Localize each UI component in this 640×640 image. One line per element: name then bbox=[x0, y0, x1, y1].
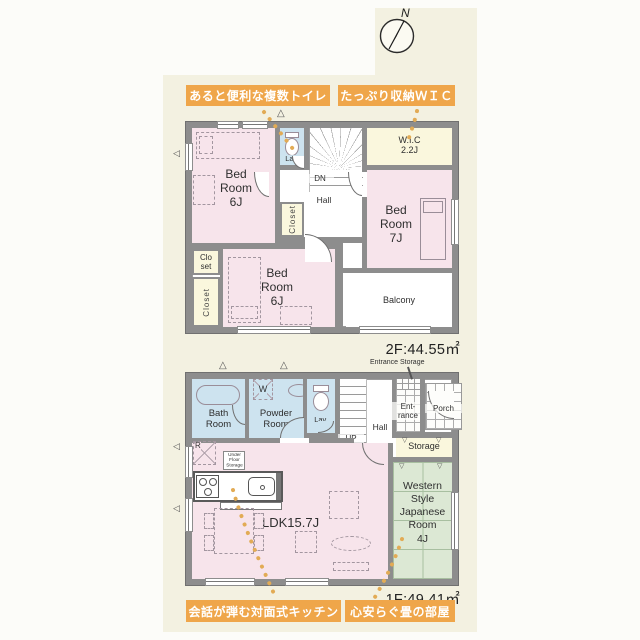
room-closet-small-2f: Clo set bbox=[192, 249, 220, 275]
washing-machine-icon: W bbox=[253, 379, 273, 400]
window-mark bbox=[286, 579, 328, 585]
triangle-down-icon: ▽ bbox=[437, 463, 442, 470]
triangle-left-icon: ◁ bbox=[173, 504, 180, 513]
wall bbox=[220, 249, 223, 327]
window-mark bbox=[238, 327, 310, 333]
closet-left-label: Closet bbox=[202, 288, 211, 317]
chair-icon bbox=[254, 513, 264, 529]
bed-pillow-icon bbox=[199, 136, 213, 154]
triangle-left-icon: ◁ bbox=[173, 442, 180, 451]
bathtub-icon bbox=[196, 385, 240, 405]
burner-icon bbox=[199, 478, 207, 486]
compass-north-label: N bbox=[401, 6, 410, 20]
callout-tatami: 心安らぐ畳の部屋 bbox=[345, 600, 455, 622]
burner-icon bbox=[204, 488, 212, 496]
dining-table-icon bbox=[214, 508, 254, 554]
wall bbox=[335, 243, 343, 327]
closet-small-label: Clo set bbox=[200, 253, 212, 271]
triangle-down-icon: ▽ bbox=[399, 463, 404, 470]
toilet-bowl-icon bbox=[313, 392, 329, 411]
low-table-icon bbox=[295, 531, 317, 553]
window-mark bbox=[186, 144, 192, 170]
closet-mid-label: Closet bbox=[288, 205, 297, 234]
under-floor-storage: Under Floor Storage bbox=[223, 451, 245, 470]
porch-label: Porch bbox=[425, 404, 462, 413]
chair-icon bbox=[204, 535, 214, 551]
triangle-down-icon: ▽ bbox=[402, 437, 407, 444]
wic-label: W.I.C 2.2J bbox=[367, 135, 452, 156]
tv-board-icon bbox=[333, 562, 369, 571]
window-mark bbox=[452, 200, 458, 244]
room-closet-left-2f: Closet bbox=[192, 277, 220, 327]
rug-icon bbox=[331, 536, 371, 551]
kitchen-sink-icon bbox=[248, 477, 275, 496]
stairs-down-label: DN bbox=[306, 174, 334, 183]
stove-icon bbox=[196, 475, 219, 498]
ldk-label: LDK15.7J bbox=[262, 516, 318, 531]
wall bbox=[309, 438, 340, 443]
toilet-tank-icon bbox=[313, 385, 329, 392]
room-closet-mid-2f: Closet bbox=[280, 202, 304, 237]
compass-icon: N bbox=[370, 2, 434, 68]
floor2-area-label: 2F:44.55㎡ bbox=[340, 338, 460, 359]
floor-plan-1f: Bath Room W Powder Room Lav. UP Hall Ent… bbox=[186, 373, 458, 585]
hall-1f-label: Hall bbox=[368, 423, 392, 433]
entrance-storage-label: Entrance Storage bbox=[370, 359, 438, 367]
window-mark bbox=[186, 499, 192, 531]
entrance-storage-area bbox=[396, 379, 420, 390]
desk-icon bbox=[280, 306, 312, 325]
triangle-up-icon: △ bbox=[280, 361, 288, 371]
triangle-up-icon: △ bbox=[277, 109, 285, 119]
drain-icon bbox=[260, 485, 265, 490]
washer-label: W bbox=[259, 385, 268, 394]
callout-kitchen: 会話が弾む対面式キッチン bbox=[186, 600, 341, 622]
window-mark bbox=[243, 122, 267, 128]
refrigerator-icon: R bbox=[193, 441, 216, 465]
window-mark bbox=[360, 327, 430, 333]
window-mark bbox=[206, 579, 254, 585]
stairs-winder-2f bbox=[309, 128, 363, 170]
bedroom-7j-label: Bed Room 7J bbox=[364, 204, 428, 245]
under-floor-storage-label: Under Floor Storage bbox=[226, 453, 242, 468]
window-mark bbox=[218, 122, 238, 128]
callout-multiple-toilets: あると便利な複数トイレ bbox=[186, 85, 330, 106]
triangle-up-icon: △ bbox=[219, 361, 227, 371]
wall bbox=[340, 438, 354, 443]
triangle-down-icon: ▽ bbox=[436, 437, 441, 444]
hall-2f-label: Hall bbox=[308, 196, 340, 206]
floor-plan-2f: DN Hall Closet W.I.C 2.2J Bed Room 7J Ba… bbox=[186, 122, 458, 333]
chair-icon bbox=[254, 535, 264, 551]
refrigerator-label: R bbox=[195, 442, 201, 450]
balcony-label: Balcony bbox=[346, 295, 452, 305]
window-mark bbox=[452, 493, 458, 549]
counter-divider bbox=[276, 473, 281, 500]
burner-icon bbox=[209, 478, 217, 486]
window-mark bbox=[186, 447, 192, 477]
wall bbox=[388, 443, 393, 579]
callout-wic-storage: たっぷり収納ＷＩＣ bbox=[338, 85, 455, 106]
kitchen-counter bbox=[193, 471, 283, 502]
sofa-icon bbox=[329, 491, 359, 519]
japanese-room-label: Western Style Japanese Room 4J bbox=[393, 480, 452, 546]
triangle-left-icon: ◁ bbox=[173, 149, 180, 158]
bedroom-6j-lower-label: Bed Room 6J bbox=[247, 267, 307, 308]
chair-icon bbox=[204, 513, 214, 529]
